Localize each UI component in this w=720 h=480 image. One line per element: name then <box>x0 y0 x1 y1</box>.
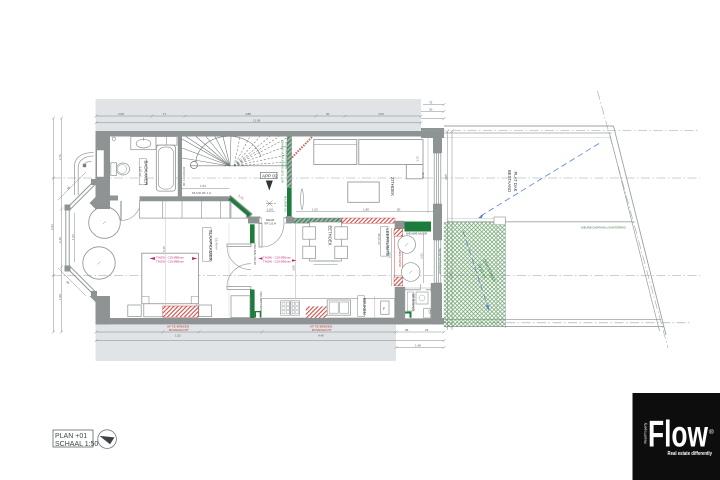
svg-text:6,63: 6,63 <box>50 224 54 230</box>
svg-text:75: 75 <box>429 100 433 104</box>
svg-text:3,05: 3,05 <box>292 265 296 271</box>
svg-text:BTTR BRANDWEREND: BTTR BRANDWEREND <box>284 142 287 169</box>
svg-text:1,48: 1,48 <box>415 343 421 347</box>
svg-text:28,11 m²: 28,11 m² <box>377 234 381 246</box>
svg-text:1,08: 1,08 <box>58 294 62 300</box>
svg-text:3,97 m²: 3,97 m² <box>139 167 143 177</box>
svg-text:98: 98 <box>405 328 409 332</box>
svg-text:17: 17 <box>163 112 167 116</box>
svg-text:TH(24) - C19 Ø50mm: TH(24) - C19 Ø50mm <box>263 260 292 264</box>
svg-text:APP 02: APP 02 <box>262 173 278 178</box>
svg-text:EETHOEK: EETHOEK <box>328 226 333 246</box>
svg-text:2,08: 2,08 <box>118 112 124 116</box>
svg-text:5,15: 5,15 <box>162 246 166 252</box>
svg-text:4,40: 4,40 <box>318 334 324 338</box>
svg-text:1,54: 1,54 <box>200 184 206 188</box>
svg-text:NIEUW SCHUIFRAAM: NIEUW SCHUIFRAAM <box>438 248 441 274</box>
svg-text:NIEUWE MUUR: NIEUWE MUUR <box>406 232 427 236</box>
svg-text:PLAT DAK: PLAT DAK <box>513 172 518 192</box>
svg-text:RF 1/2 H: RF 1/2 H <box>265 222 277 226</box>
svg-text:3,05: 3,05 <box>444 174 448 180</box>
svg-text:TH(23) - C19 Ø65mm: TH(23) - C19 Ø65mm <box>156 260 185 264</box>
svg-text:5,69: 5,69 <box>388 252 392 258</box>
svg-text:2,45: 2,45 <box>58 237 62 243</box>
svg-text:Flow: Flow <box>648 414 708 455</box>
svg-text:1,63: 1,63 <box>71 234 75 240</box>
svg-text:GEMENE MUUR AANVULLEN 1 UUR: GEMENE MUUR AANVULLEN 1 UUR <box>281 140 284 183</box>
svg-text:1,52: 1,52 <box>175 334 181 338</box>
svg-text:23: 23 <box>425 328 429 332</box>
svg-text:15,40 m²: 15,40 m² <box>214 238 218 250</box>
svg-text:NIEUWE DAKRAND of DAKTERRAS: NIEUWE DAKRAND of DAKTERRAS <box>581 226 626 230</box>
svg-text:1,98: 1,98 <box>363 207 369 211</box>
svg-text:LEEFRUIMTE: LEEFRUIMTE <box>385 228 390 256</box>
svg-text:BESTAAND: BESTAAND <box>507 170 512 192</box>
svg-text:2,32: 2,32 <box>421 172 425 178</box>
svg-text:4,53: 4,53 <box>378 112 384 116</box>
svg-text:CV: CV <box>428 310 432 314</box>
svg-text:SLAAPKAMER: SLAAPKAMER <box>208 230 213 262</box>
svg-text:1,02: 1,02 <box>312 207 318 211</box>
svg-text:BADKAMER: BADKAMER <box>144 161 149 186</box>
svg-text:SCHAAL 1:50: SCHAAL 1:50 <box>55 441 98 448</box>
svg-text:30: 30 <box>326 112 330 116</box>
svg-text:®: ® <box>709 428 714 436</box>
svg-text:KEUKEN: KEUKEN <box>362 298 367 315</box>
svg-text:BERGING: BERGING <box>411 294 415 312</box>
svg-text:90: 90 <box>397 207 401 211</box>
svg-text:11,96: 11,96 <box>253 119 261 123</box>
svg-text:4,88: 4,88 <box>245 112 251 116</box>
svg-text:3,63: 3,63 <box>420 253 424 259</box>
svg-text:2,72: 2,72 <box>58 154 62 160</box>
svg-text:5,50: 5,50 <box>449 272 453 278</box>
svg-text:Real Property: Real Property <box>643 422 647 443</box>
svg-text:ZITHOEK: ZITHOEK <box>390 177 395 196</box>
svg-text:Real estate differently: Real estate differently <box>668 451 713 457</box>
svg-text:NIEUWE DEUR: NIEUWE DEUR <box>253 244 257 266</box>
svg-text:BOVENLICHT: BOVENLICHT <box>312 328 332 332</box>
svg-text:D.T.: D.T. <box>416 157 420 163</box>
svg-text:30: 30 <box>429 107 433 111</box>
svg-text:BOVENLICHT: BOVENLICHT <box>169 328 189 332</box>
svg-text:PLAN +01: PLAN +01 <box>55 433 87 440</box>
svg-text:MUUR RF 1 H: MUUR RF 1 H <box>192 191 211 195</box>
svg-text:MUUR RF 1H: MUUR RF 1H <box>284 196 287 212</box>
svg-text:RF 1 H MUUR: RF 1 H MUUR <box>182 166 186 186</box>
svg-text:1,04: 1,04 <box>267 207 273 211</box>
